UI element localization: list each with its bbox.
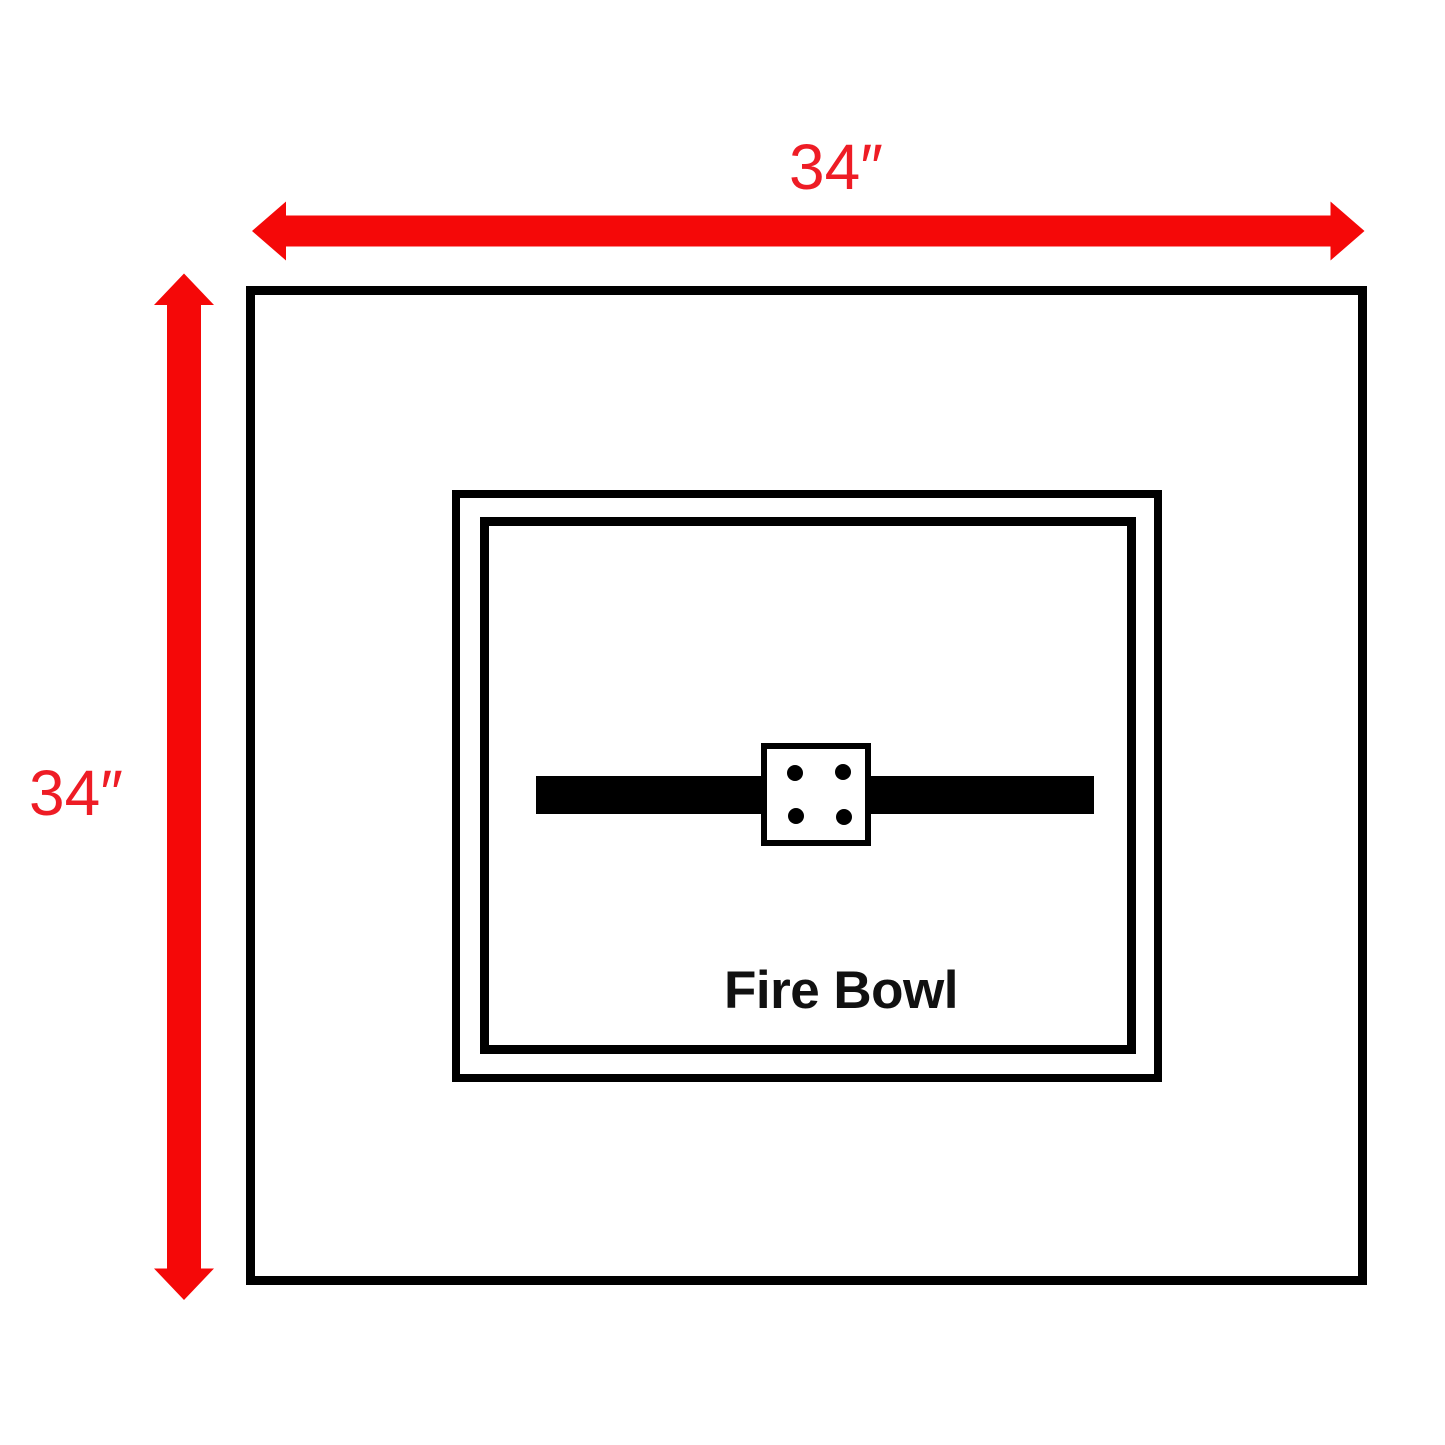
svg-text:34″: 34″ (789, 131, 883, 203)
svg-text:Fire Bowl: Fire Bowl (724, 961, 958, 1020)
svg-text:34″: 34″ (29, 757, 123, 829)
